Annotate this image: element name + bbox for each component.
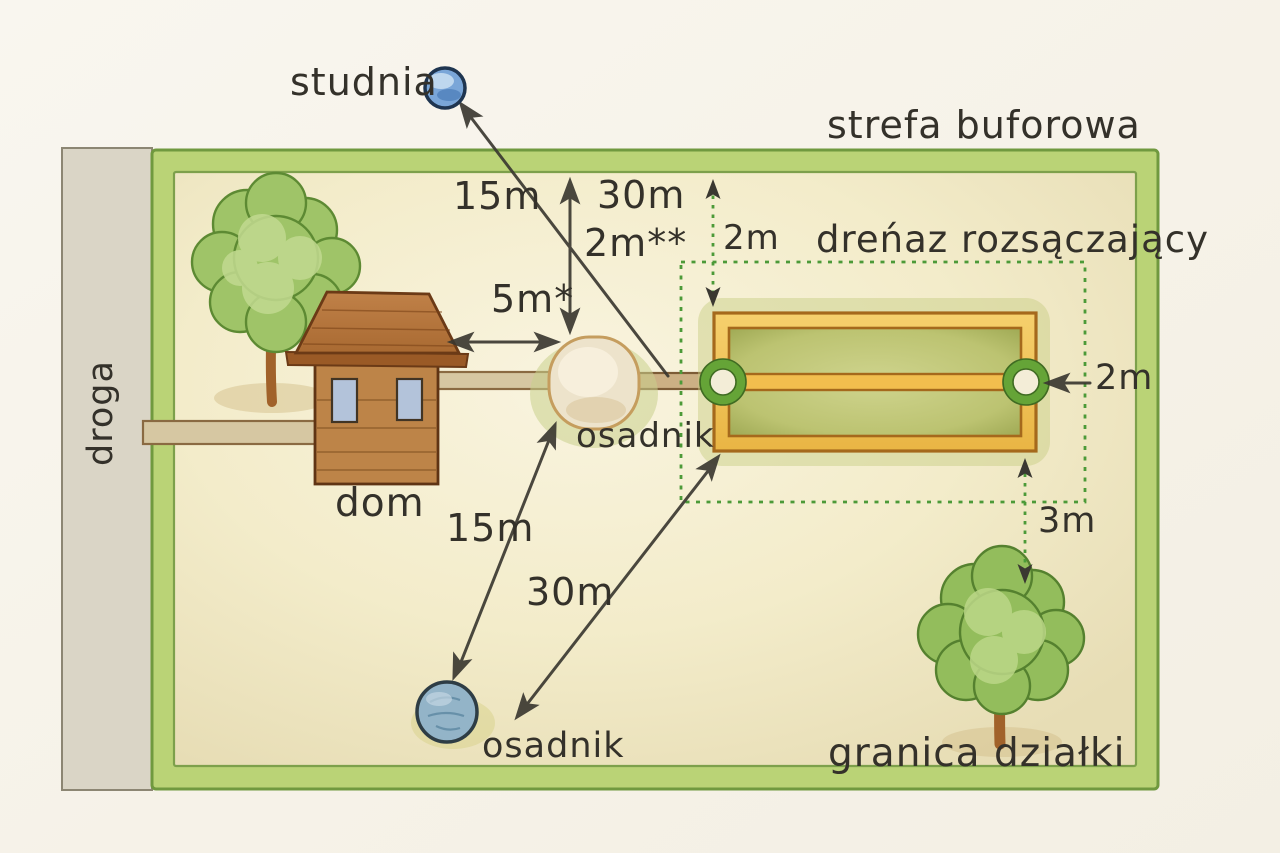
- septic-system-plan: { "labels": { "well": "studnia", "buffer…: [0, 0, 1280, 853]
- lower-tank-highlight: [426, 692, 452, 706]
- house-tank-measure: 5m*: [491, 280, 574, 318]
- tank-highlight: [558, 347, 618, 397]
- well-tank-measure: 15m: [453, 177, 541, 215]
- well-shade: [437, 89, 461, 101]
- tank-boundary-measure: 2m**: [584, 224, 687, 262]
- buffer-zone-label: strefa buforowa: [827, 106, 1141, 144]
- tank-lower-label: osadnik: [482, 729, 625, 764]
- plot-boundary-label: granica działki: [828, 734, 1125, 773]
- drain-field: [698, 298, 1050, 466]
- drain-lower-measure: 30m: [526, 573, 614, 611]
- house-window: [397, 379, 422, 420]
- buffer-top-measure: 2m: [723, 221, 780, 255]
- tank-main-label: osadnik: [576, 419, 715, 453]
- well-label: studnia: [290, 63, 438, 101]
- road: [62, 148, 152, 790]
- drain-outlet-ring: [1003, 359, 1049, 405]
- drain-tree-measure: 3m: [1038, 504, 1096, 539]
- tank-lower-measure: 15m: [446, 509, 534, 547]
- drain-inlet-ring: [700, 359, 746, 405]
- outlet-offset-measure: 2m: [1095, 361, 1153, 396]
- house-label: dom: [335, 484, 425, 523]
- drain-field-label: dreńaz rozsączający: [816, 221, 1209, 258]
- road-label: droga: [84, 374, 128, 466]
- drain-center-pipe: [723, 374, 1026, 390]
- house-window: [332, 379, 357, 422]
- driveway: [143, 421, 323, 444]
- road-surface: [62, 148, 152, 790]
- well-drain-measure: 30m: [597, 176, 685, 214]
